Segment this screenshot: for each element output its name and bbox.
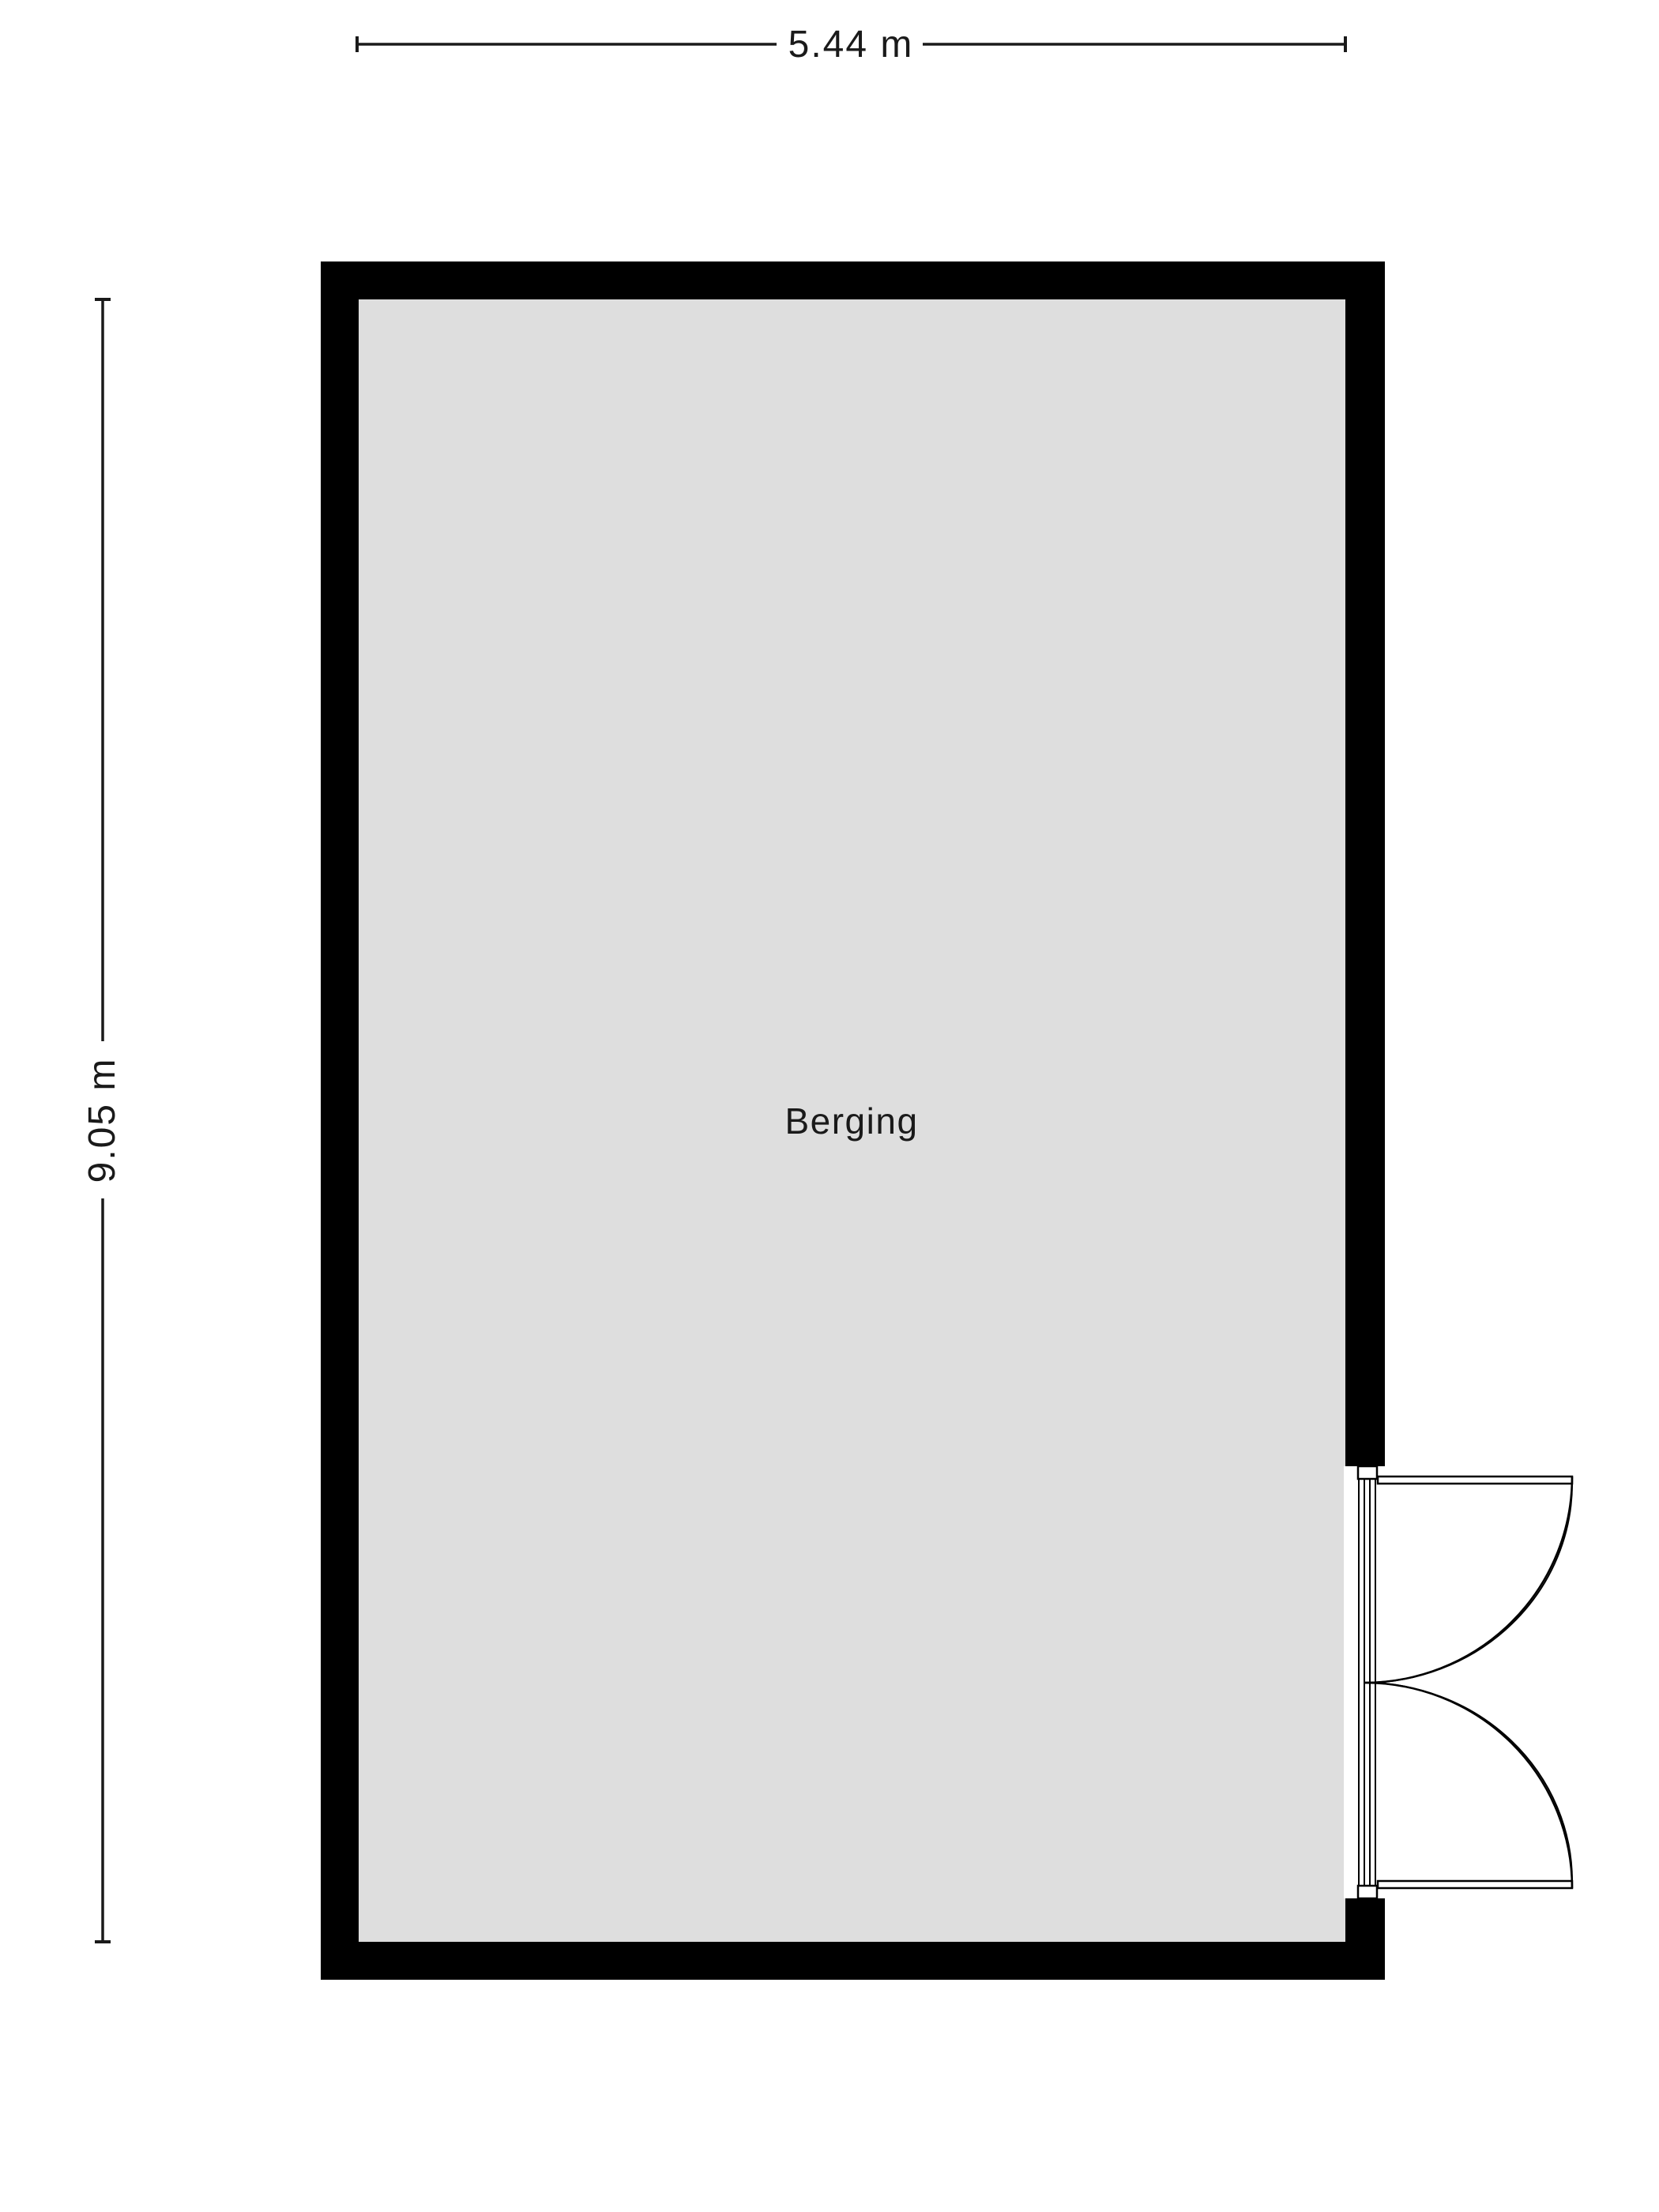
door-swing-arc-bottom [1364,1683,1572,1888]
floorplan-canvas: 5.44 m 9.05 m Berging [0,0,1659,2212]
door-swing-arc-bottom-inner [1364,1683,1572,1881]
room-label: Berging [784,1103,918,1139]
door-jamb-bottom [1358,1886,1377,1898]
door-swing-arc-top-inner [1364,1484,1572,1683]
door-leaf-top [1378,1477,1572,1484]
height-dimension-label: 9.05 m [84,1058,122,1183]
door-jamb-top [1358,1466,1377,1479]
door-swing-arc-top [1364,1477,1572,1683]
width-dimension-label: 5.44 m [788,26,914,64]
door-leaf-bottom [1378,1881,1572,1888]
